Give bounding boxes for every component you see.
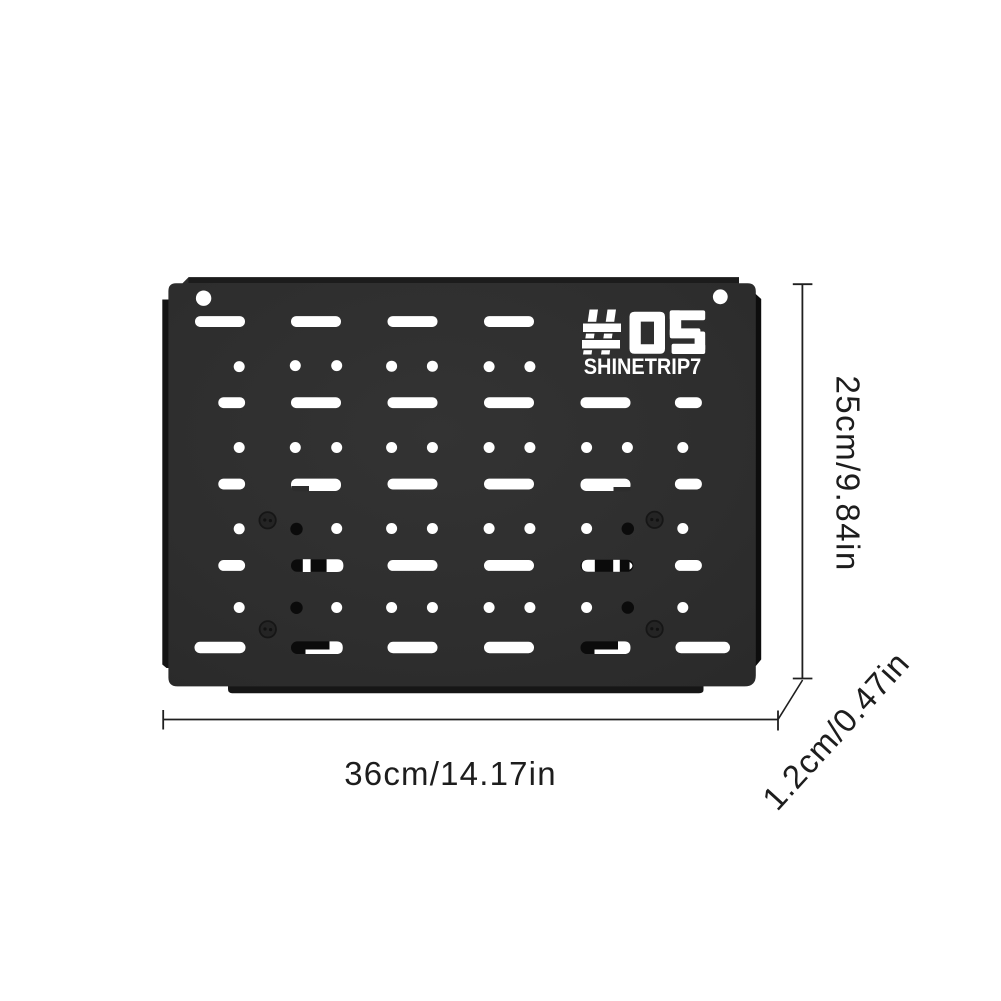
svg-text:36cm/14.17in: 36cm/14.17in: [344, 755, 557, 792]
svg-text:25cm/9.84in: 25cm/9.84in: [830, 375, 867, 571]
svg-text:1.2cm/0.47in: 1.2cm/0.47in: [755, 644, 917, 817]
svg-text:SHINETRIP7: SHINETRIP7: [584, 354, 702, 379]
